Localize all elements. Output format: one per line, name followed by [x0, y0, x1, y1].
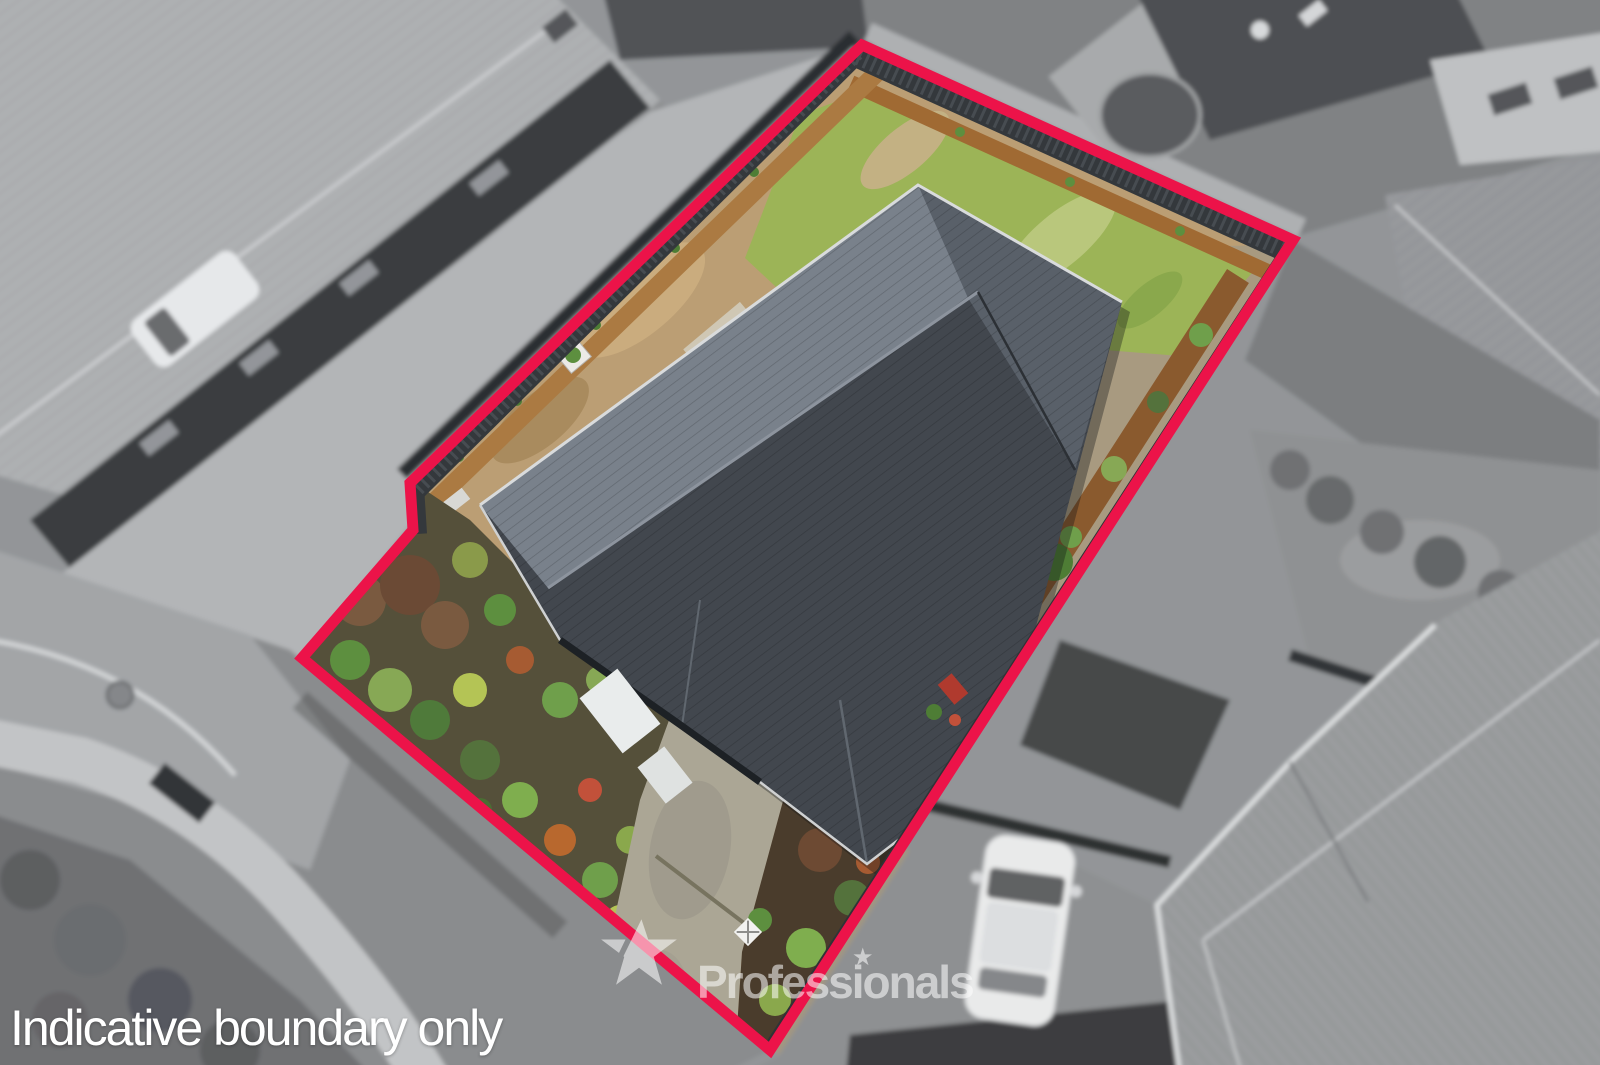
professionals-star-icon [600, 912, 678, 990]
bush [1414, 536, 1466, 588]
trampoline [1100, 73, 1200, 157]
potted-plant [926, 704, 942, 720]
watermark-text: Professionals [697, 955, 973, 1009]
ac-unit [1251, 21, 1269, 39]
bush [1270, 450, 1310, 490]
aerial-photo: Professionals ★ Indicative boundary only [0, 0, 1600, 1065]
bush [1306, 476, 1354, 524]
photo-scene [0, 0, 1600, 1065]
bush [0, 850, 60, 910]
star-icon: ★ [852, 946, 874, 970]
agency-watermark: Professionals ★ [600, 912, 1030, 1012]
bush [54, 904, 126, 976]
boundary-disclaimer: Indicative boundary only [10, 999, 501, 1057]
outdoor-furniture [949, 714, 961, 726]
bush [1360, 510, 1404, 554]
manhole [107, 682, 133, 708]
